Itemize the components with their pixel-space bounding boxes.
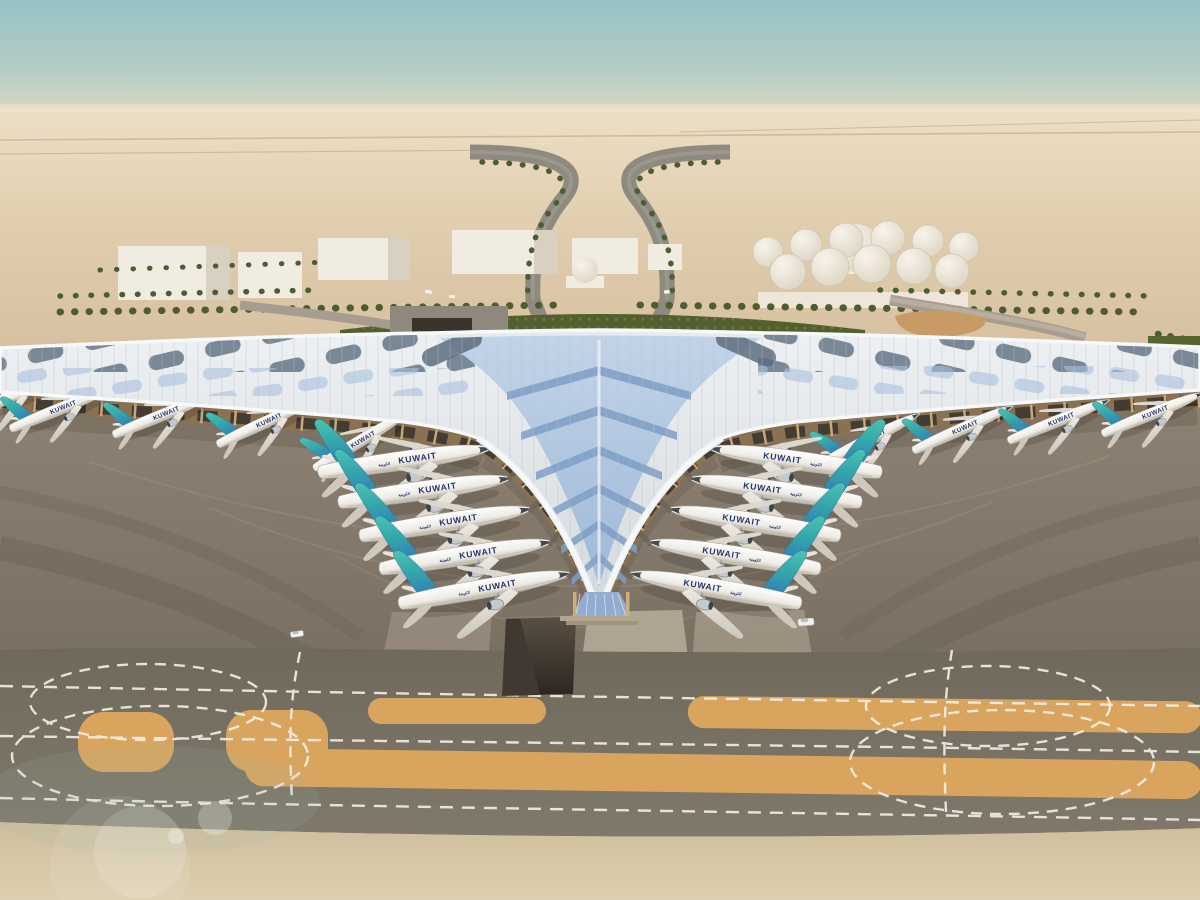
- render-canvas: KUWAIT KUWAIT KUWAIT KUWAIT KUWAIT KUWAI…: [0, 0, 1200, 900]
- desert-background: [0, 108, 1200, 350]
- horizon-haze: [0, 104, 1200, 112]
- airport-aerial-render: KUWAIT KUWAIT KUWAIT KUWAIT KUWAIT KUWAI…: [0, 0, 1200, 900]
- small-dome: [572, 257, 598, 283]
- road-overpass: [390, 306, 508, 334]
